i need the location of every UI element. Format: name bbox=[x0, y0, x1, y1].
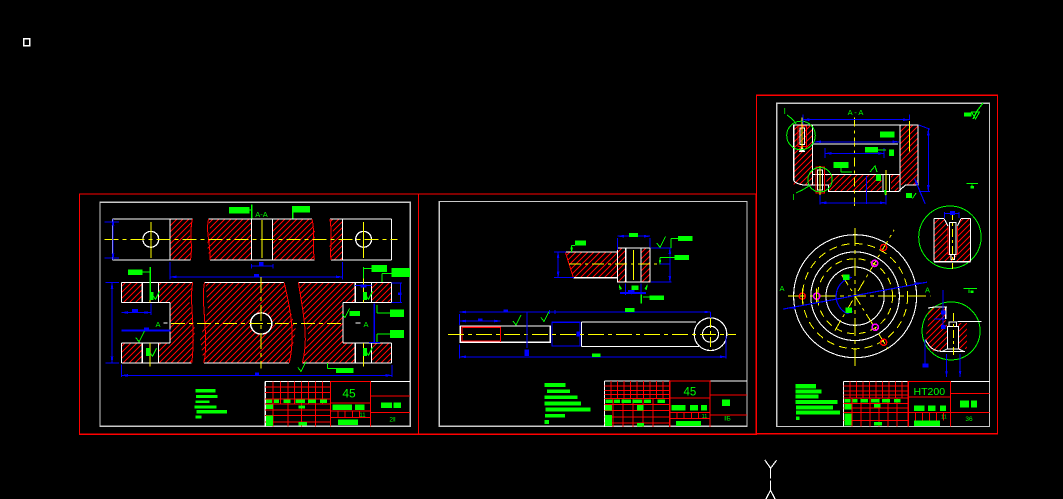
svg-text:A - A: A - A bbox=[848, 108, 864, 117]
svg-text:HT200: HT200 bbox=[914, 386, 946, 398]
svg-text:11: 11 bbox=[702, 414, 708, 420]
svg-text:11: 11 bbox=[359, 413, 366, 419]
svg-text:A: A bbox=[363, 320, 368, 329]
svg-text:ǁБ: ǁБ bbox=[724, 417, 730, 423]
svg-text:2ǁ: 2ǁ bbox=[389, 416, 396, 423]
svg-text:45: 45 bbox=[342, 387, 356, 401]
svg-text:45: 45 bbox=[684, 386, 697, 398]
svg-text:A: A bbox=[779, 284, 784, 293]
svg-text:A-A: A-A bbox=[255, 210, 268, 219]
svg-text:A: A bbox=[925, 286, 930, 295]
svg-text:A: A bbox=[155, 320, 160, 329]
svg-text:36: 36 bbox=[965, 416, 973, 423]
svg-text:I: I bbox=[792, 193, 794, 202]
svg-text:11: 11 bbox=[941, 414, 947, 420]
svg-text:I: I bbox=[784, 107, 786, 116]
